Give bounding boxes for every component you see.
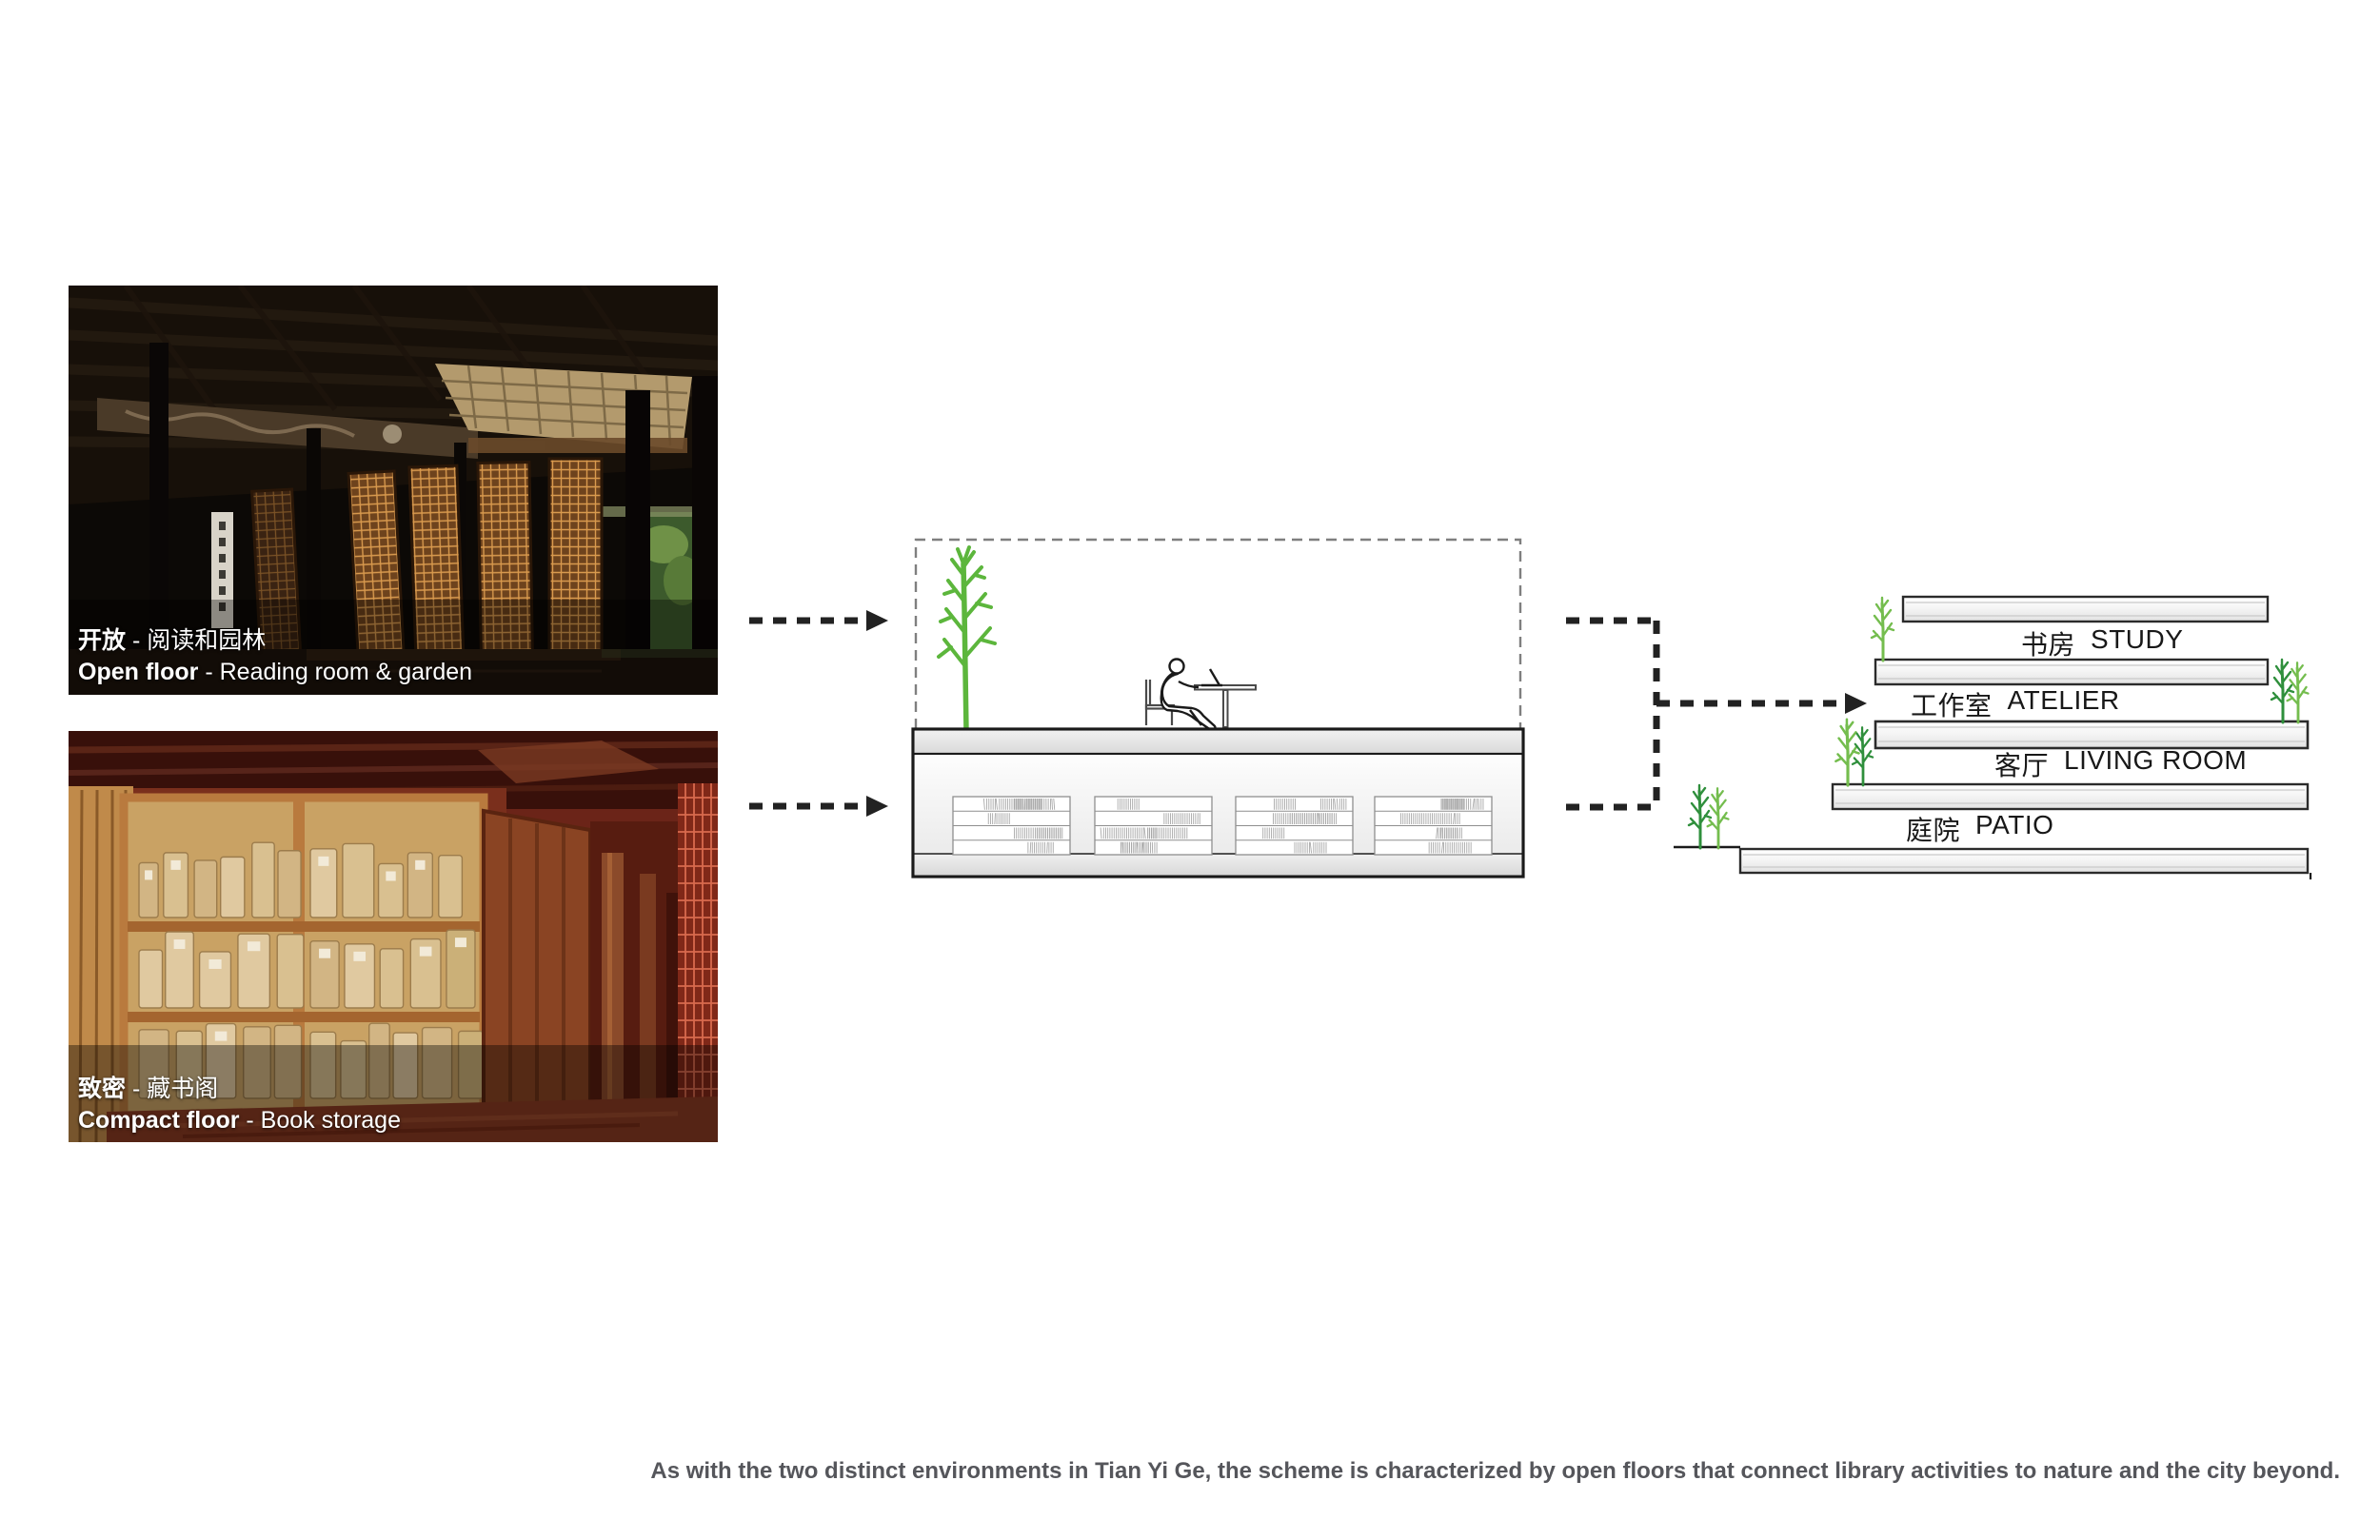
level-zh: 工作室 bbox=[1911, 685, 1993, 723]
level-label-living-room: 客厅LIVING ROOM bbox=[1994, 745, 2247, 783]
book-cluster bbox=[1320, 799, 1345, 810]
book-cluster bbox=[1028, 842, 1053, 854]
slab-atelier bbox=[1875, 721, 2308, 748]
level-label-study: 书房STUDY bbox=[2021, 624, 2183, 662]
bookshelf-unit bbox=[1095, 797, 1212, 855]
book-cluster bbox=[1274, 813, 1333, 824]
slab-roof bbox=[1903, 597, 2268, 622]
person-icon bbox=[1161, 660, 1216, 730]
slab-patio bbox=[1740, 849, 2308, 873]
level-en: LIVING ROOM bbox=[2064, 745, 2247, 783]
tree-icon bbox=[2271, 660, 2293, 722]
level-en: STUDY bbox=[2091, 624, 2183, 662]
level-zh: 客厅 bbox=[1994, 745, 2049, 783]
level-en: PATIO bbox=[1975, 810, 2053, 848]
slab-living-room bbox=[1833, 784, 2308, 809]
tree-icon bbox=[1689, 785, 1711, 848]
level-label-atelier: 工作室ATELIER bbox=[1911, 685, 2120, 723]
tree-icon bbox=[1853, 727, 1873, 785]
slab-study bbox=[1875, 660, 2268, 684]
open-floor-dashed-box bbox=[916, 540, 1520, 729]
bookshelf-unit bbox=[1375, 797, 1492, 855]
section-diagram bbox=[913, 729, 1523, 877]
book-cluster bbox=[1441, 799, 1483, 810]
level-zh: 庭院 bbox=[1906, 810, 1960, 848]
arrowhead-icon bbox=[866, 610, 888, 631]
chair-icon bbox=[1146, 680, 1174, 725]
arrow-open-floor-link bbox=[749, 610, 888, 631]
bookshelf-unit bbox=[953, 797, 1070, 855]
concept-diagram-sheet: 开放 - 阅读和园林 Open floor - Reading room & g… bbox=[0, 0, 2380, 1540]
footer-caption: As with the two distinct environments in… bbox=[650, 1458, 2340, 1485]
level-zh: 书房 bbox=[2021, 624, 2075, 662]
tree-icon bbox=[1872, 598, 1894, 661]
stack-connector bbox=[1566, 621, 1867, 807]
arrowhead-icon bbox=[866, 796, 888, 817]
book-cluster bbox=[1429, 842, 1471, 854]
arrow-compact-floor-link bbox=[749, 796, 888, 817]
tree-icon bbox=[1835, 720, 1858, 785]
arrowhead-icon bbox=[1845, 693, 1867, 714]
book-cluster bbox=[1037, 828, 1061, 839]
laptop-icon bbox=[1201, 669, 1222, 685]
bookshelf-unit bbox=[1236, 797, 1353, 855]
person-at-desk bbox=[1146, 660, 1256, 730]
book-cluster bbox=[1401, 813, 1460, 824]
section-tree-icon bbox=[939, 547, 995, 732]
level-label-patio: 庭院PATIO bbox=[1906, 810, 2053, 848]
level-en: ATELIER bbox=[2008, 685, 2120, 723]
